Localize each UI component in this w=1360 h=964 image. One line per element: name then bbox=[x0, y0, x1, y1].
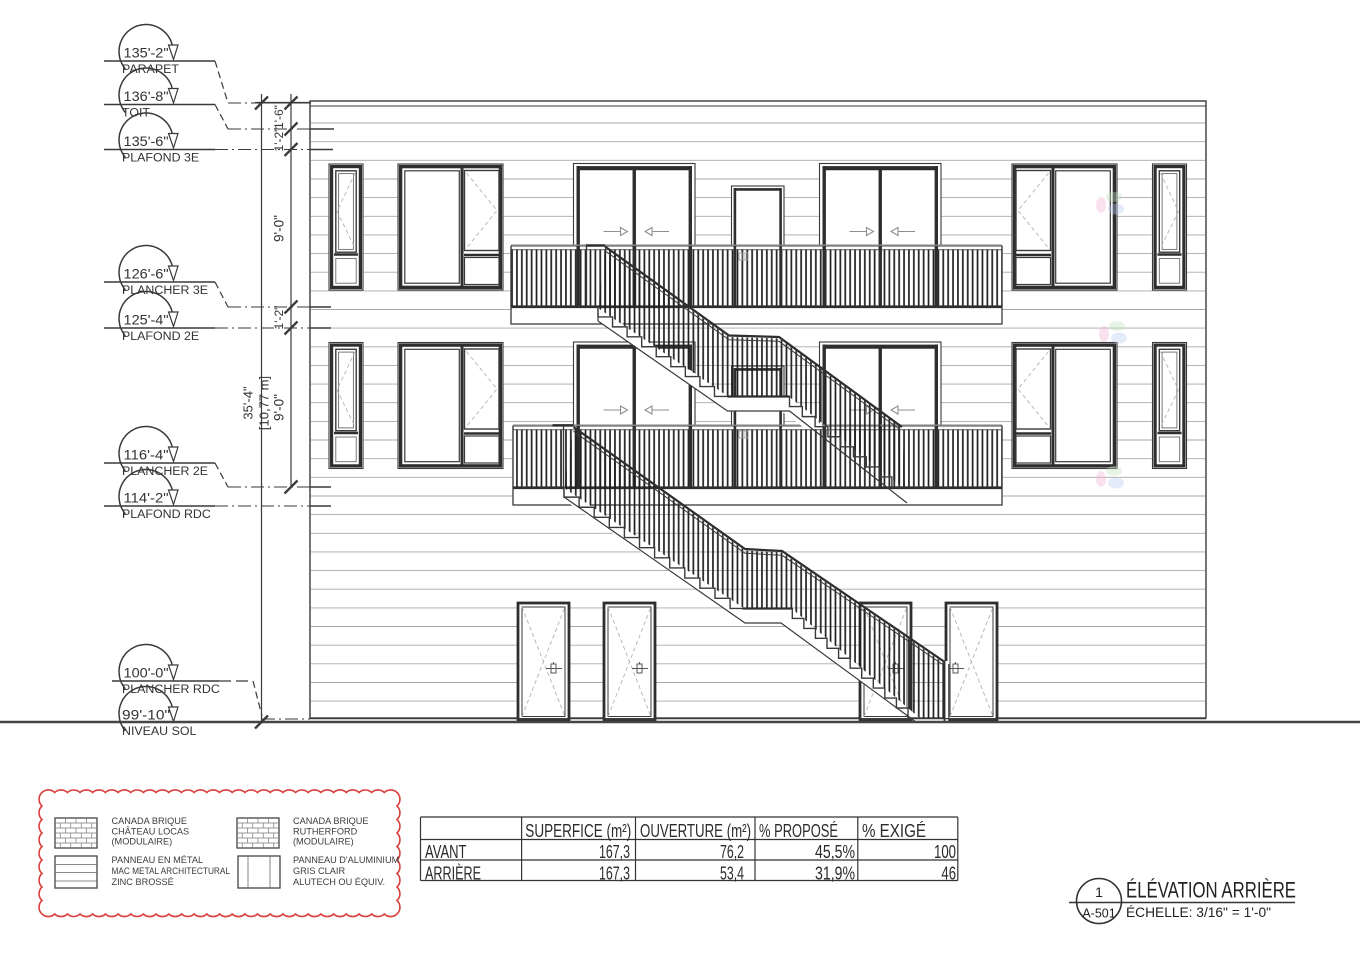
svg-text:ÉLÉVATION ARRIÈRE: ÉLÉVATION ARRIÈRE bbox=[1126, 878, 1296, 903]
svg-text:9'-0": 9'-0" bbox=[271, 394, 286, 421]
svg-text:53,4: 53,4 bbox=[720, 862, 744, 883]
svg-text:AVANT: AVANT bbox=[425, 841, 467, 862]
svg-text:SUPERFICE (m²): SUPERFICE (m²) bbox=[525, 820, 631, 841]
svg-text:A-501: A-501 bbox=[1082, 907, 1115, 921]
svg-text:PLANCHER 3E: PLANCHER 3E bbox=[122, 283, 208, 297]
svg-text:100'-0": 100'-0" bbox=[124, 666, 169, 682]
svg-text:(MODULAIRE): (MODULAIRE) bbox=[112, 836, 173, 846]
svg-text:76,2: 76,2 bbox=[720, 841, 744, 862]
svg-text:CANADA BRIQUE: CANADA BRIQUE bbox=[293, 816, 369, 826]
svg-text:46: 46 bbox=[941, 862, 956, 883]
svg-text:100: 100 bbox=[934, 841, 956, 862]
svg-text:[10,77 m]: [10,77 m] bbox=[257, 376, 272, 430]
svg-text:NIVEAU SOL: NIVEAU SOL bbox=[122, 724, 196, 738]
svg-text:126'-6": 126'-6" bbox=[124, 267, 169, 283]
svg-text:1: 1 bbox=[1095, 884, 1103, 900]
svg-text:GRIS CLAIR: GRIS CLAIR bbox=[293, 866, 345, 876]
svg-text:125'-4": 125'-4" bbox=[124, 313, 169, 329]
svg-text:1'-2": 1'-2" bbox=[272, 128, 286, 152]
svg-text:1'-6": 1'-6" bbox=[272, 105, 286, 129]
svg-text:PANNEAU D'ALUMINIUM: PANNEAU D'ALUMINIUM bbox=[293, 855, 399, 865]
svg-text:31,9%: 31,9% bbox=[815, 862, 855, 883]
svg-text:9'-0": 9'-0" bbox=[271, 215, 286, 242]
svg-text:PLANCHER RDC: PLANCHER RDC bbox=[122, 682, 220, 696]
svg-text:CHÂTEAU LOCAS: CHÂTEAU LOCAS bbox=[112, 826, 190, 836]
svg-text:ÉCHELLE: 3/16" = 1'-0": ÉCHELLE: 3/16" = 1'-0" bbox=[1126, 905, 1271, 920]
svg-text:35'-4": 35'-4" bbox=[241, 386, 256, 420]
svg-text:CANADA BRIQUE: CANADA BRIQUE bbox=[112, 816, 188, 826]
svg-text:114'-2": 114'-2" bbox=[124, 491, 169, 507]
svg-text:167,3: 167,3 bbox=[599, 862, 630, 883]
svg-text:PANNEAU EN MÉTAL: PANNEAU EN MÉTAL bbox=[112, 855, 204, 865]
svg-text:PLAFOND 3E: PLAFOND 3E bbox=[122, 151, 199, 165]
svg-text:45,5%: 45,5% bbox=[815, 841, 855, 862]
svg-text:135'-6": 135'-6" bbox=[124, 134, 169, 150]
svg-text:135'-2": 135'-2" bbox=[124, 46, 169, 62]
svg-text:% PROPOSÉ: % PROPOSÉ bbox=[759, 820, 838, 841]
svg-text:ZINC BROSSÉ: ZINC BROSSÉ bbox=[112, 877, 174, 887]
svg-text:167,3: 167,3 bbox=[599, 841, 630, 862]
svg-text:PLAFOND 2E: PLAFOND 2E bbox=[122, 329, 199, 343]
svg-text:MAC METAL ARCHITECTURAL: MAC METAL ARCHITECTURAL bbox=[112, 866, 231, 876]
svg-text:PLANCHER 2E: PLANCHER 2E bbox=[122, 464, 208, 478]
svg-text:% EXIGÉ: % EXIGÉ bbox=[862, 820, 926, 841]
svg-text:RUTHERFORD: RUTHERFORD bbox=[293, 826, 358, 836]
svg-text:1'-2": 1'-2" bbox=[272, 306, 286, 330]
svg-text:OUVERTURE (m²): OUVERTURE (m²) bbox=[640, 820, 751, 841]
svg-text:(MODULAIRE): (MODULAIRE) bbox=[293, 836, 354, 846]
svg-text:ALUTECH OU ÉQUIV.: ALUTECH OU ÉQUIV. bbox=[293, 877, 385, 887]
svg-text:116'-4": 116'-4" bbox=[124, 448, 169, 464]
svg-text:99'-10": 99'-10" bbox=[122, 708, 170, 724]
svg-text:PLAFOND RDC: PLAFOND RDC bbox=[122, 507, 211, 521]
svg-text:ARRIÈRE: ARRIÈRE bbox=[425, 862, 481, 883]
svg-text:136'-8": 136'-8" bbox=[124, 89, 169, 105]
